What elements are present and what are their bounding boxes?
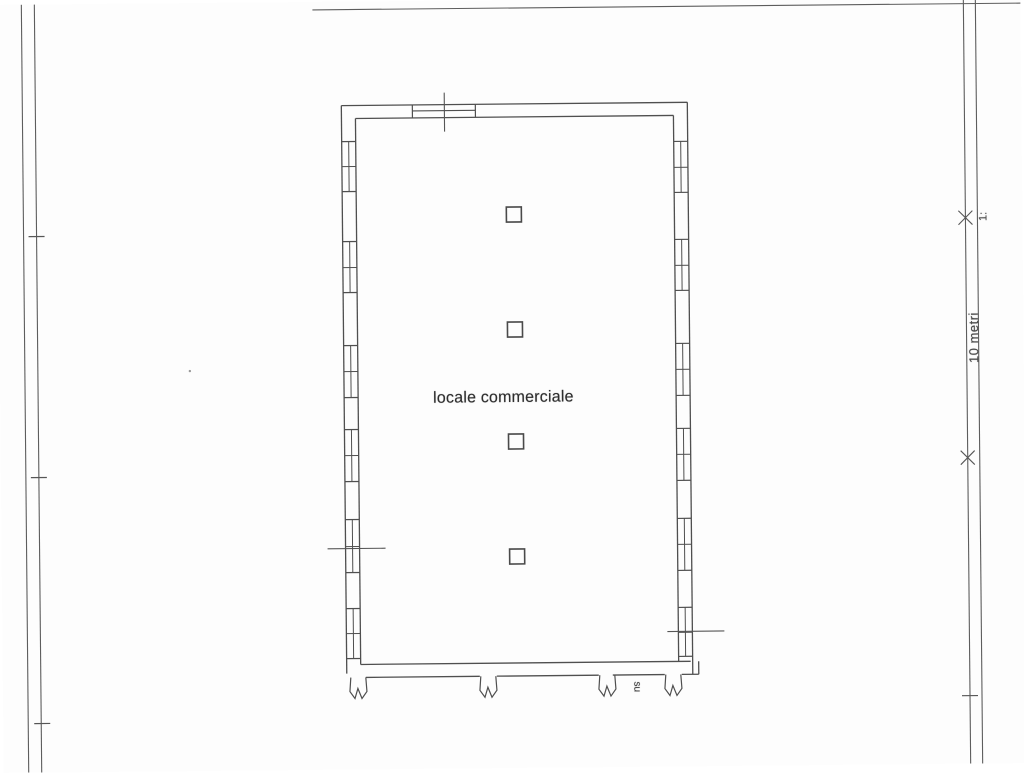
scan-speck [189,370,191,372]
sheet-border-line [963,0,970,764]
sheet-border-line [312,3,1022,10]
break-mark [599,675,616,696]
scale-label: 1: [977,212,989,221]
sheet-border-line [975,0,982,763]
break-mark [480,676,497,697]
vertical-dimension-label: 10 metri [966,312,981,363]
wall-line [687,102,692,674]
floor-plan-drawing [0,0,1024,773]
pillar [510,549,525,564]
section-line [667,631,724,632]
wall-line [341,102,687,105]
wall-line [361,661,691,664]
pillar [508,434,523,449]
pillar [507,322,522,337]
wall-line [355,115,673,118]
wall-line [341,106,346,674]
sheet-border-line [21,5,28,773]
scanned-floor-plan-sheet: locale commerciale su 10 metri 1: [0,0,1024,773]
wall-line [497,675,599,676]
wall-line [355,118,360,664]
section-line [328,548,386,549]
wall-line [366,676,480,677]
wall-line [673,115,678,661]
window-glass-line [352,520,353,573]
break-mark [665,674,682,695]
sheet-border-line [34,5,41,773]
stair-direction-label: su [631,681,642,692]
room-label: locale commerciale [433,388,574,407]
break-mark [350,677,367,698]
pillar [506,207,521,222]
window-glass-line [412,110,475,111]
